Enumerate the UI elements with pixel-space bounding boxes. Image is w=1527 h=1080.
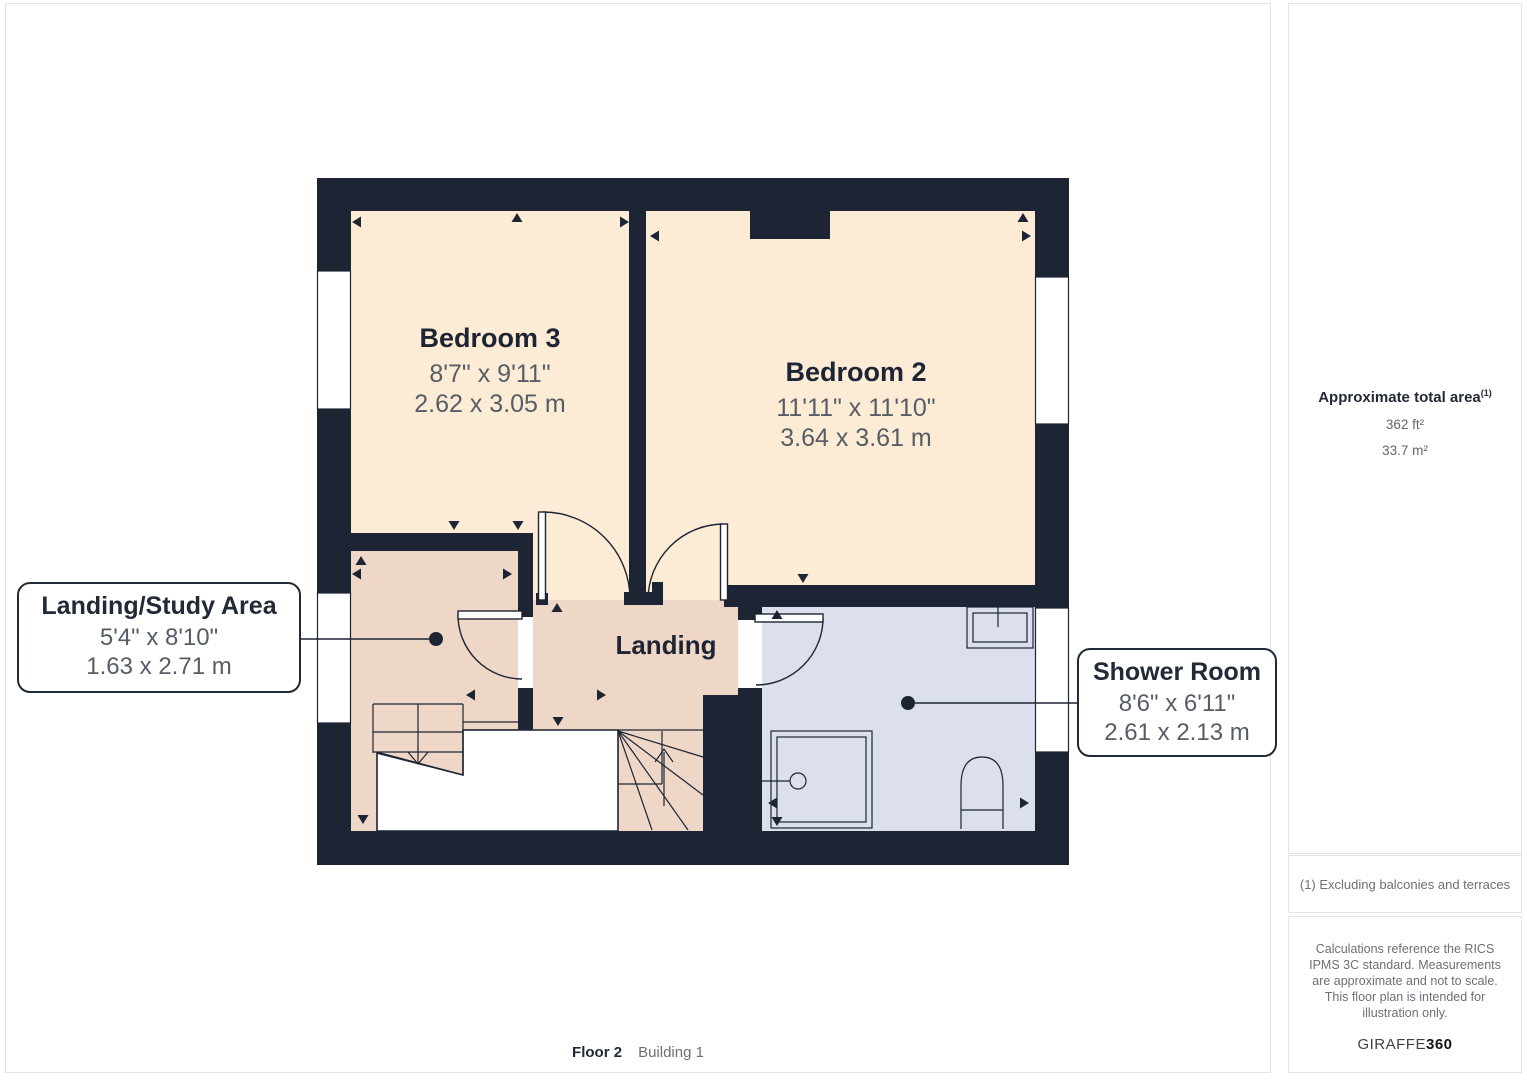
window-icon xyxy=(1036,608,1069,752)
floor-indicator: Floor 2Building 1 xyxy=(5,1044,1271,1061)
total-area-m: 33.7 m² xyxy=(1289,443,1521,458)
bedroom3-label: Bedroom 3 xyxy=(419,323,560,353)
bedroom3-imperial: 8'7" x 9'11" xyxy=(429,360,550,388)
sidebar-area-section: Approximate total area(1) 362 ft² 33.7 m… xyxy=(1288,3,1522,854)
callout-imperial: 8'6" x 6'11" xyxy=(1079,689,1275,718)
sidebar-disclaimer: Calculations reference the RICS IPMS 3C … xyxy=(1288,916,1522,1073)
landing-label: Landing xyxy=(615,630,716,660)
sidebar: Approximate total area(1) 362 ft² 33.7 m… xyxy=(1287,3,1523,1073)
total-area-title: Approximate total area(1) xyxy=(1289,388,1521,406)
building-label: Building 1 xyxy=(638,1044,704,1061)
callout-title: Landing/Study Area xyxy=(19,590,299,623)
logo-text: GIRAFFE xyxy=(1357,1036,1426,1053)
callout-landing-study-area: Landing/Study Area 5'4" x 8'10" 1.63 x 2… xyxy=(17,582,301,693)
study-door-gap xyxy=(518,617,533,688)
floor-label: Floor 2 xyxy=(572,1044,622,1061)
shower-anchor-dot xyxy=(901,696,915,710)
study-anchor-dot xyxy=(429,632,443,646)
callout-metric: 2.61 x 2.13 m xyxy=(1079,718,1275,747)
bedroom2-imperial: 11'11" x 11'10" xyxy=(776,394,935,422)
disclaimer-text: Calculations reference the RICS IPMS 3C … xyxy=(1309,942,1501,1020)
total-area-title-text: Approximate total area xyxy=(1318,389,1481,406)
callout-imperial: 5'4" x 8'10" xyxy=(19,623,299,652)
shower-door-gap xyxy=(738,620,762,688)
footnote-ref: (1) xyxy=(1481,388,1492,398)
bedroom2-label: Bedroom 2 xyxy=(785,357,926,387)
callout-shower-room: Shower Room 8'6" x 6'11" 2.61 x 2.13 m xyxy=(1077,648,1277,757)
giraffe360-logo: GIRAFFE360 xyxy=(1302,1037,1508,1053)
window-icon xyxy=(1036,277,1069,424)
room-floors xyxy=(351,210,1035,831)
total-area-block: Approximate total area(1) 362 ft² 33.7 m… xyxy=(1289,388,1521,458)
callout-title: Shower Room xyxy=(1079,656,1275,689)
bedroom3-metric: 2.62 x 3.05 m xyxy=(414,390,565,418)
total-area-ft: 362 ft² xyxy=(1289,417,1521,432)
sidebar-footnote: (1) Excluding balconies and terraces xyxy=(1288,855,1522,913)
callout-metric: 1.63 x 2.71 m xyxy=(19,652,299,681)
window-icon xyxy=(318,593,351,723)
shower-room-floor xyxy=(762,607,1035,831)
window-icon xyxy=(318,271,351,409)
logo-text-bold: 360 xyxy=(1426,1036,1453,1053)
bedroom2-metric: 3.64 x 3.61 m xyxy=(780,424,931,452)
